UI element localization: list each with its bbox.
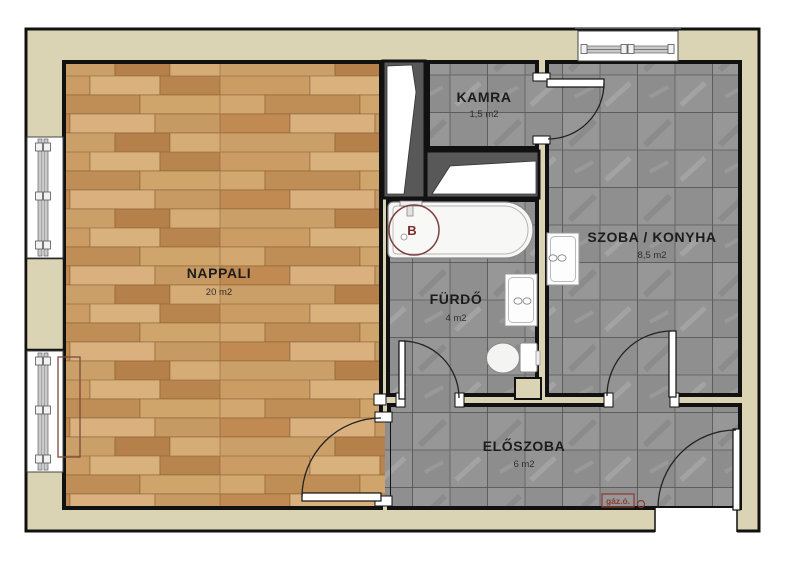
label-kamra: KAMRA (456, 89, 511, 105)
label-eloszoba: ELŐSZOBA (483, 437, 566, 454)
room-kamra (428, 62, 537, 148)
label-szoba-konyha: SZOBA / KONYHA (587, 229, 716, 245)
area-furdo: 4 m2 (445, 313, 466, 324)
window-left-upper (27, 137, 63, 258)
radiator-furdo (505, 274, 537, 326)
nappali-floor (64, 62, 381, 508)
area-kamra: 1,5 m2 (469, 109, 498, 120)
wall-jog (515, 378, 541, 399)
toilet (487, 343, 541, 373)
label-nappali: NAPPALI (187, 265, 252, 281)
floor-plan: B gáz.ó. NAPPALI 20 m2 KAMRA 1,5 m2 SZOB… (0, 0, 800, 575)
radiator-szoba (547, 233, 579, 285)
area-szoba-konyha: 8,5 m2 (637, 250, 666, 261)
area-nappali: 20 m2 (206, 287, 232, 298)
area-eloszoba: 6 m2 (513, 459, 534, 470)
floor-plan-drawing: B gáz.ó. NAPPALI 20 m2 KAMRA 1,5 m2 SZOB… (0, 0, 800, 575)
room-nappali (64, 62, 381, 508)
bathtub: B (388, 201, 533, 258)
room-eloszoba (389, 405, 740, 508)
shaft-horizontal (426, 151, 539, 198)
label-furdo: FÜRDŐ (430, 290, 483, 307)
window-top (575, 29, 681, 62)
window-pier (26, 258, 64, 350)
shaft-vertical (383, 61, 425, 198)
boiler-label: B (407, 223, 416, 238)
eloszoba-floor (389, 405, 740, 508)
gas-meter-label: gáz.ó. (606, 496, 630, 506)
kamra-floor (428, 62, 537, 148)
